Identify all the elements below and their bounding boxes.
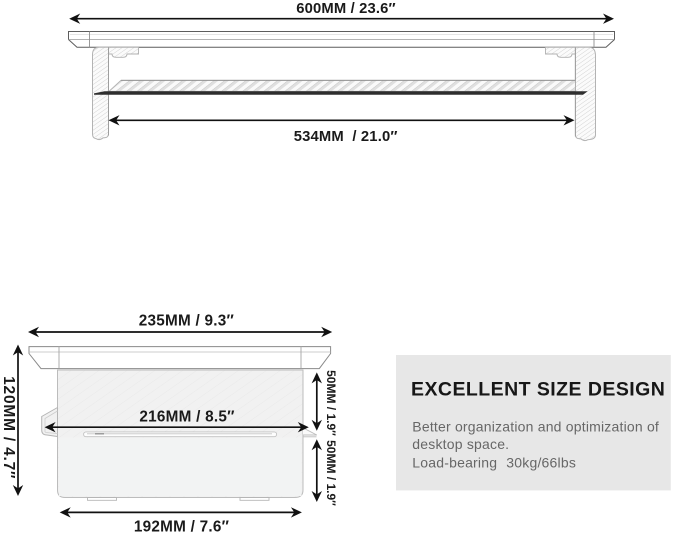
svg-text:Load-bearing: Load-bearing <box>412 455 497 471</box>
svg-text:192MM / 7.6″: 192MM / 7.6″ <box>134 519 230 535</box>
svg-text:50MM / 1.9″: 50MM / 1.9″ <box>324 370 338 436</box>
svg-text:30kg/66lbs: 30kg/66lbs <box>506 455 576 471</box>
svg-text:216MM / 8.5″: 216MM / 8.5″ <box>139 408 235 425</box>
svg-text:235MM / 9.3″: 235MM / 9.3″ <box>139 313 235 330</box>
svg-text:EXCELLENT SIZE DESIGN: EXCELLENT SIZE DESIGN <box>411 379 665 401</box>
svg-text:50MM / 1.9″: 50MM / 1.9″ <box>324 440 338 506</box>
svg-text:desktop space.: desktop space. <box>412 436 509 452</box>
svg-text:120MM / 4.7″: 120MM / 4.7″ <box>0 376 17 479</box>
svg-text:534MM / 21.0″: 534MM / 21.0″ <box>294 129 398 145</box>
svg-text:600MM / 23.6″: 600MM / 23.6″ <box>296 1 396 17</box>
svg-text:Better organization and optimi: Better organization and optimization of <box>412 418 659 434</box>
